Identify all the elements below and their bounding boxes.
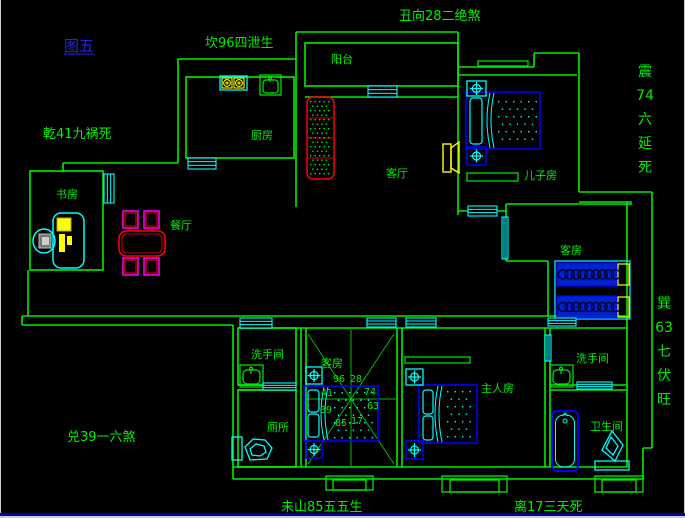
mattress-dot bbox=[326, 160, 327, 161]
window bbox=[188, 158, 216, 169]
room-label-toilet-room: 厕所 bbox=[267, 421, 289, 434]
mattress-dot bbox=[312, 115, 313, 116]
mattress-dot bbox=[364, 407, 365, 408]
mattress-dot bbox=[317, 160, 318, 161]
mattress-dot bbox=[524, 109, 525, 110]
mattress-dot bbox=[310, 137, 311, 138]
mattress-dot bbox=[312, 151, 313, 152]
room-label-bathroom: 卫生间 bbox=[590, 419, 623, 433]
mattress-dot bbox=[319, 146, 320, 147]
mattress-dot bbox=[506, 131, 507, 132]
mattress-dot bbox=[319, 128, 320, 129]
compass-number: 85 bbox=[335, 418, 347, 429]
mattress-dot bbox=[338, 415, 339, 416]
mattress-dot bbox=[349, 392, 350, 393]
annotation-kan: 坎96四泄生 bbox=[205, 36, 274, 51]
master-shelf bbox=[405, 357, 470, 363]
mattress-dot bbox=[312, 142, 313, 143]
mattress-dot bbox=[324, 110, 325, 111]
room-label-guest-room-lower: 客房 bbox=[321, 356, 343, 370]
mattress-dot bbox=[342, 437, 343, 438]
guest-lower-pillow bbox=[308, 390, 319, 412]
window bbox=[406, 318, 436, 327]
mattress-dot bbox=[328, 119, 329, 120]
mattress-dot bbox=[321, 160, 322, 161]
annotation-wei: 未山85五五生 bbox=[281, 500, 363, 515]
window bbox=[577, 382, 612, 389]
tv-speaker-body bbox=[443, 144, 451, 172]
mattress-dot bbox=[317, 106, 318, 107]
mattress-dot bbox=[502, 124, 503, 125]
annotation-dui: 兑39一六煞 bbox=[67, 430, 136, 445]
mattress-dot bbox=[455, 421, 456, 422]
mattress-dot bbox=[315, 128, 316, 129]
mattress-dot bbox=[455, 391, 456, 392]
mattress-dot bbox=[447, 436, 448, 437]
mattress-dot bbox=[328, 146, 329, 147]
mattress-dot bbox=[368, 415, 369, 416]
mattress-dot bbox=[338, 430, 339, 431]
mattress-dot bbox=[315, 164, 316, 165]
mattress-dot bbox=[310, 146, 311, 147]
mattress-dot bbox=[310, 101, 311, 102]
mattress-dot bbox=[357, 437, 358, 438]
mattress-dot bbox=[345, 430, 346, 431]
mattress-dot bbox=[310, 128, 311, 129]
mattress-dot bbox=[536, 116, 537, 117]
dining-chair bbox=[123, 211, 138, 228]
mattress-dot bbox=[326, 133, 327, 134]
mattress-dot bbox=[524, 124, 525, 125]
balcony-walls bbox=[305, 43, 458, 86]
annotation-zhen: 74 bbox=[636, 88, 654, 104]
window bbox=[545, 335, 551, 361]
bathtub bbox=[552, 411, 578, 471]
mattress-dot bbox=[328, 110, 329, 111]
mattress-dot bbox=[528, 101, 529, 102]
window bbox=[104, 174, 114, 203]
kids-shelf bbox=[467, 173, 518, 181]
mattress-dot bbox=[324, 164, 325, 165]
mattress-dot bbox=[524, 139, 525, 140]
mattress-dot bbox=[357, 407, 358, 408]
mattress-dot bbox=[372, 437, 373, 438]
mattress-dot bbox=[312, 124, 313, 125]
mattress-dot bbox=[517, 124, 518, 125]
guest-lower-pillow bbox=[308, 414, 319, 437]
cad-floorplan-canvas: 坎96四泄生丑向28二绝煞乾41九祸死兑39一六煞未山85五五生离17三天死震7… bbox=[0, 0, 685, 518]
study-keyboard bbox=[67, 236, 72, 245]
mattress-dot bbox=[498, 131, 499, 132]
mattress-dot bbox=[317, 169, 318, 170]
stove-burners bbox=[222, 78, 244, 88]
mattress-dot bbox=[328, 155, 329, 156]
mattress-dot bbox=[513, 101, 514, 102]
mattress-dot bbox=[334, 392, 335, 393]
mattress-dot bbox=[342, 407, 343, 408]
mattress-dot bbox=[513, 131, 514, 132]
mattress-dot bbox=[326, 151, 327, 152]
mattress-dot bbox=[324, 128, 325, 129]
guest-lower-nightstand-bottom bbox=[306, 441, 322, 458]
mattress-dot bbox=[455, 406, 456, 407]
mattress-dot bbox=[470, 421, 471, 422]
dining-chair bbox=[144, 258, 159, 275]
mattress-dot bbox=[502, 109, 503, 110]
mattress-dot bbox=[326, 124, 327, 125]
mattress-dot bbox=[310, 110, 311, 111]
mattress-dot bbox=[342, 392, 343, 393]
study-tower bbox=[59, 234, 65, 252]
mattress-dot bbox=[315, 173, 316, 174]
mattress-dot bbox=[326, 142, 327, 143]
kids-bed-blanket bbox=[487, 93, 494, 148]
compass-number: 28 bbox=[350, 374, 362, 385]
toilet-right bbox=[595, 431, 629, 470]
left-edge-border bbox=[0, 0, 1, 518]
mattress-dot bbox=[470, 391, 471, 392]
mattress-dot bbox=[528, 131, 529, 132]
annotation-zhen: 死 bbox=[638, 160, 652, 176]
mattress-dot bbox=[312, 160, 313, 161]
dining-table-inner bbox=[122, 234, 162, 253]
mattress-dot bbox=[509, 124, 510, 125]
mattress-dot bbox=[458, 399, 459, 400]
annotation-li: 离17三天死 bbox=[514, 499, 583, 515]
dining-chair bbox=[123, 258, 138, 275]
mattress-dot bbox=[502, 139, 503, 140]
study-computer bbox=[57, 218, 71, 231]
mattress-dot bbox=[455, 436, 456, 437]
annotation-zhen: 震 bbox=[638, 64, 652, 80]
mattress-dot bbox=[319, 173, 320, 174]
mattress-dot bbox=[328, 128, 329, 129]
mattress-dot bbox=[345, 415, 346, 416]
mattress-dot bbox=[521, 101, 522, 102]
mattress-dot bbox=[315, 101, 316, 102]
mattress-dot bbox=[466, 399, 467, 400]
mattress-dot bbox=[447, 406, 448, 407]
mattress-dot bbox=[319, 110, 320, 111]
annotation-zhen: 六 bbox=[638, 112, 652, 128]
mattress-dot bbox=[324, 119, 325, 120]
mattress-dot bbox=[360, 430, 361, 431]
mattress-dot bbox=[321, 106, 322, 107]
master-nightstand-top bbox=[406, 369, 423, 385]
mattress-dot bbox=[310, 164, 311, 165]
mattress-dot bbox=[310, 173, 311, 174]
mattress-dot bbox=[324, 101, 325, 102]
mattress-dot bbox=[315, 119, 316, 120]
dining-chair bbox=[144, 211, 159, 228]
mattress-dot bbox=[368, 430, 369, 431]
dining-chairs bbox=[123, 211, 159, 275]
mattress-dot bbox=[451, 399, 452, 400]
window bbox=[367, 318, 396, 327]
mattress-dot bbox=[321, 169, 322, 170]
annotation-xun: 旺 bbox=[657, 392, 671, 408]
mattress-dot bbox=[338, 400, 339, 401]
mattress-dot bbox=[319, 101, 320, 102]
washroom-right-sink bbox=[550, 365, 573, 387]
annotation-xun: 七 bbox=[657, 344, 671, 360]
annotation-qian: 乾41九祸死 bbox=[43, 127, 112, 142]
mattress-dot bbox=[506, 101, 507, 102]
mattress-dot bbox=[349, 437, 350, 438]
mattress-dot bbox=[324, 137, 325, 138]
window bbox=[240, 318, 272, 328]
annotation-xun: 伏 bbox=[657, 368, 671, 384]
compass-number: 17 bbox=[351, 416, 363, 427]
mattress-dot bbox=[466, 414, 467, 415]
mattress-dot bbox=[509, 109, 510, 110]
mattress-dot bbox=[364, 422, 365, 423]
annotation-zhen: 延 bbox=[638, 136, 652, 152]
guest-twin-beds bbox=[555, 261, 630, 319]
mattress-dot bbox=[536, 101, 537, 102]
mattress-dot bbox=[462, 391, 463, 392]
mattress-dot bbox=[462, 406, 463, 407]
mattress-dot bbox=[326, 169, 327, 170]
mattress-dot bbox=[498, 101, 499, 102]
mattress-dot bbox=[334, 437, 335, 438]
window bbox=[502, 217, 508, 259]
room-label-guest-room-upper: 客房 bbox=[560, 243, 582, 257]
study-monitor-screen bbox=[42, 237, 49, 245]
mattress-dot bbox=[451, 414, 452, 415]
mattress-dot bbox=[521, 116, 522, 117]
mattress-dot bbox=[312, 169, 313, 170]
mattress-dot bbox=[451, 429, 452, 430]
mattress-dot bbox=[349, 407, 350, 408]
dining-table bbox=[119, 231, 165, 256]
mattress-dot bbox=[506, 116, 507, 117]
mattress-dot bbox=[458, 429, 459, 430]
mattress-dot bbox=[462, 421, 463, 422]
mattress-dot bbox=[326, 115, 327, 116]
kitchen-sink bbox=[260, 75, 281, 95]
kids-bed-pillow bbox=[470, 98, 482, 144]
window bbox=[548, 318, 576, 326]
mattress-dot bbox=[324, 173, 325, 174]
window bbox=[263, 383, 296, 390]
mattress-dot bbox=[536, 131, 537, 132]
mattress-dot bbox=[353, 430, 354, 431]
mattress-dot bbox=[447, 391, 448, 392]
entry-porch-left bbox=[326, 476, 373, 490]
mattress-dot bbox=[328, 137, 329, 138]
window bbox=[368, 86, 397, 97]
room-label-washroom-left: 洗手间 bbox=[251, 347, 284, 361]
mattress-dot bbox=[317, 142, 318, 143]
mattress-dot bbox=[317, 124, 318, 125]
compass-number: 41 bbox=[321, 388, 333, 399]
room-label-living: 客厅 bbox=[386, 166, 408, 180]
compass-number: 63 bbox=[367, 401, 379, 412]
figure-title: 图五 bbox=[64, 37, 94, 55]
mattress-dot bbox=[334, 407, 335, 408]
mattress-dot bbox=[521, 131, 522, 132]
mattress-dot bbox=[321, 142, 322, 143]
mattress-dot bbox=[360, 400, 361, 401]
mattress-dot bbox=[345, 400, 346, 401]
mattress-dot bbox=[517, 139, 518, 140]
annotation-chou: 丑向28二绝煞 bbox=[399, 8, 481, 24]
window bbox=[468, 206, 497, 216]
mattress-dot bbox=[328, 173, 329, 174]
mattress-dot bbox=[315, 137, 316, 138]
mattress-dot bbox=[458, 414, 459, 415]
mattress-dot bbox=[317, 115, 318, 116]
mattress-dot bbox=[470, 406, 471, 407]
statusbar-line bbox=[0, 513, 685, 516]
mattress-dot bbox=[310, 119, 311, 120]
mattress-dot bbox=[498, 116, 499, 117]
mattress-dot bbox=[310, 155, 311, 156]
mattress-dot bbox=[466, 429, 467, 430]
annotation-xun: 巽 bbox=[657, 296, 671, 312]
mattress-dot bbox=[517, 109, 518, 110]
mattress-dot bbox=[532, 124, 533, 125]
room-label-washroom-right: 洗手间 bbox=[576, 351, 609, 365]
master-bed bbox=[419, 385, 477, 443]
mattress-dot bbox=[319, 155, 320, 156]
mattress-dot bbox=[328, 101, 329, 102]
mattress-dot bbox=[315, 146, 316, 147]
compass-number: 74 bbox=[364, 387, 376, 398]
room-label-kids-room: 儿子房 bbox=[524, 169, 557, 182]
mattress-dot bbox=[372, 422, 373, 423]
master-pillow bbox=[423, 416, 433, 440]
mattress-dot bbox=[312, 106, 313, 107]
mattress-dot bbox=[319, 119, 320, 120]
mattress-dot bbox=[509, 139, 510, 140]
hall-shelf bbox=[478, 61, 528, 66]
mattress-dot bbox=[321, 151, 322, 152]
guest-lower-nightstand-top bbox=[306, 367, 322, 384]
mattress-dot bbox=[315, 155, 316, 156]
mattress-dot bbox=[315, 110, 316, 111]
mattress-dot bbox=[321, 115, 322, 116]
mattress-dot bbox=[312, 133, 313, 134]
mattress-dot bbox=[364, 437, 365, 438]
mattress-dot bbox=[317, 133, 318, 134]
compass-number: 96 bbox=[333, 374, 345, 385]
floorplan-drawing: 坎96四泄生丑向28二绝煞乾41九祸死兑39一六煞未山85五五生离17三天死震7… bbox=[0, 0, 685, 518]
mattress-dot bbox=[528, 116, 529, 117]
mattress-dot bbox=[470, 436, 471, 437]
mattress-dot bbox=[319, 137, 320, 138]
washroom-left-sink bbox=[240, 365, 263, 387]
mattress-dot bbox=[532, 139, 533, 140]
annotation-xun: 63 bbox=[655, 320, 673, 336]
mattress-dot bbox=[357, 392, 358, 393]
room-label-balcony: 阳台 bbox=[331, 52, 353, 66]
mattress-dot bbox=[328, 164, 329, 165]
room-label-study: 书房 bbox=[56, 188, 78, 201]
mattress-dot bbox=[532, 109, 533, 110]
mattress-dot bbox=[324, 146, 325, 147]
mattress-dot bbox=[513, 116, 514, 117]
room-label-master-room: 主人房 bbox=[481, 382, 514, 395]
mattress-dot bbox=[447, 421, 448, 422]
master-pillow bbox=[423, 390, 433, 414]
mattress-dot bbox=[324, 155, 325, 156]
room-label-kitchen: 厨房 bbox=[251, 129, 273, 142]
mattress-dot bbox=[321, 133, 322, 134]
mattress-dot bbox=[321, 124, 322, 125]
room-label-dining: 餐厅 bbox=[170, 218, 192, 232]
mattress-dot bbox=[319, 164, 320, 165]
mattress-dot bbox=[326, 106, 327, 107]
mattress-dot bbox=[353, 400, 354, 401]
mattress-dot bbox=[462, 436, 463, 437]
master-blanket bbox=[435, 386, 442, 442]
kids-bed bbox=[466, 92, 540, 149]
mattress-dot bbox=[317, 151, 318, 152]
compass-number: 39 bbox=[320, 405, 332, 416]
kids-nightstand-top bbox=[467, 81, 486, 96]
